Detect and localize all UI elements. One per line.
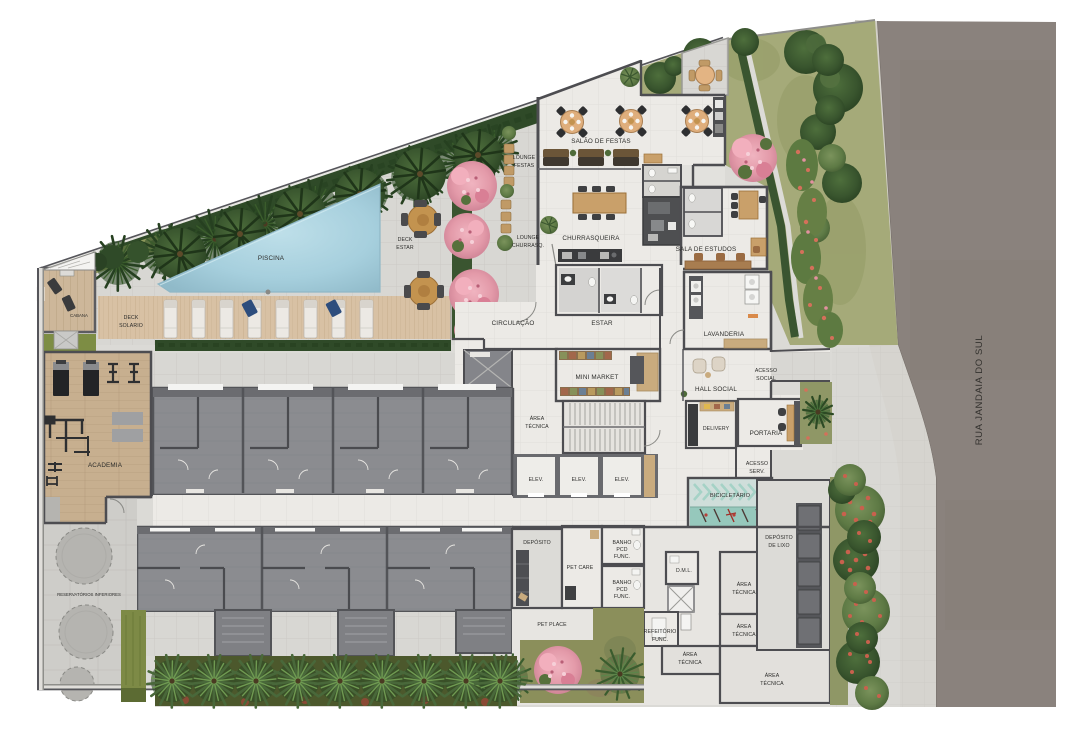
svg-text:CHURRASQ.: CHURRASQ. bbox=[512, 243, 544, 249]
svg-text:TÉCNICA: TÉCNICA bbox=[732, 589, 756, 596]
svg-text:MINI MARKET: MINI MARKET bbox=[576, 374, 619, 381]
svg-text:ESTAR: ESTAR bbox=[396, 245, 414, 251]
svg-text:ÁREA: ÁREA bbox=[683, 651, 698, 658]
svg-text:FUNC.: FUNC. bbox=[614, 554, 630, 560]
svg-text:CABANA: CABANA bbox=[70, 313, 88, 318]
svg-text:FUNC.: FUNC. bbox=[614, 594, 630, 600]
svg-text:SALA DE ESTUDOS: SALA DE ESTUDOS bbox=[676, 246, 737, 253]
svg-text:PET PLACE: PET PLACE bbox=[537, 622, 567, 628]
svg-text:SALÃO DE FESTAS: SALÃO DE FESTAS bbox=[571, 136, 631, 145]
svg-text:SOCIAL: SOCIAL bbox=[756, 376, 776, 382]
svg-text:ÁREA: ÁREA bbox=[530, 415, 545, 422]
svg-text:SERV.: SERV. bbox=[749, 469, 765, 475]
svg-text:TÉCNICA: TÉCNICA bbox=[760, 680, 784, 687]
svg-text:ÁREA: ÁREA bbox=[765, 672, 780, 679]
svg-text:BANHO: BANHO bbox=[613, 540, 632, 546]
svg-text:DELIVERY: DELIVERY bbox=[703, 426, 730, 432]
svg-text:PORTARIA: PORTARIA bbox=[750, 430, 783, 437]
svg-text:CIRCULAÇÃO: CIRCULAÇÃO bbox=[492, 318, 535, 327]
svg-text:BANHO: BANHO bbox=[613, 580, 632, 586]
svg-text:REFEITÓRIO: REFEITÓRIO bbox=[644, 628, 677, 635]
svg-text:ÁREA: ÁREA bbox=[737, 623, 752, 630]
svg-text:ELEV.: ELEV. bbox=[572, 477, 587, 483]
svg-text:D.M.L.: D.M.L. bbox=[676, 568, 692, 574]
svg-text:FESTAS: FESTAS bbox=[514, 163, 535, 169]
svg-text:PCD: PCD bbox=[616, 547, 627, 553]
svg-text:ACESSO: ACESSO bbox=[755, 368, 777, 374]
svg-text:ELEV.: ELEV. bbox=[615, 477, 630, 483]
svg-text:DE LIXO: DE LIXO bbox=[768, 543, 789, 549]
svg-text:DECK: DECK bbox=[398, 237, 413, 243]
svg-text:LOUNGE: LOUNGE bbox=[513, 155, 536, 161]
svg-text:ACESSO: ACESSO bbox=[746, 461, 768, 467]
svg-text:PISCINA: PISCINA bbox=[258, 255, 285, 262]
svg-text:ACADEMIA: ACADEMIA bbox=[88, 462, 123, 469]
svg-text:ESTAR: ESTAR bbox=[591, 320, 613, 327]
svg-text:PCD: PCD bbox=[616, 587, 627, 593]
svg-text:BICICLETÁRIO: BICICLETÁRIO bbox=[710, 492, 751, 499]
svg-text:SOLARIO: SOLARIO bbox=[119, 323, 143, 329]
svg-text:RESERVATÓRIOS INFERIORES: RESERVATÓRIOS INFERIORES bbox=[57, 592, 121, 597]
svg-text:DEPÓSITO: DEPÓSITO bbox=[523, 539, 551, 546]
svg-text:TÉCNICA: TÉCNICA bbox=[678, 659, 702, 666]
svg-text:PET CARE: PET CARE bbox=[567, 565, 594, 571]
svg-text:DEPÓSITO: DEPÓSITO bbox=[765, 534, 793, 541]
svg-text:ELEV.: ELEV. bbox=[529, 477, 544, 483]
svg-text:RUA JANDAIA DO SUL: RUA JANDAIA DO SUL bbox=[974, 335, 985, 446]
svg-text:LOUNGE: LOUNGE bbox=[517, 235, 540, 241]
svg-text:CHURRASQUEIRA: CHURRASQUEIRA bbox=[562, 235, 620, 242]
svg-text:DECK: DECK bbox=[124, 315, 139, 321]
svg-text:FUNC.: FUNC. bbox=[652, 637, 668, 643]
svg-text:HALL SOCIAL: HALL SOCIAL bbox=[695, 386, 737, 393]
svg-text:LAVANDERIA: LAVANDERIA bbox=[704, 331, 745, 338]
svg-text:ÁREA: ÁREA bbox=[737, 581, 752, 588]
svg-text:TÉCNICA: TÉCNICA bbox=[525, 423, 549, 430]
svg-text:TÉCNICA: TÉCNICA bbox=[732, 631, 756, 638]
